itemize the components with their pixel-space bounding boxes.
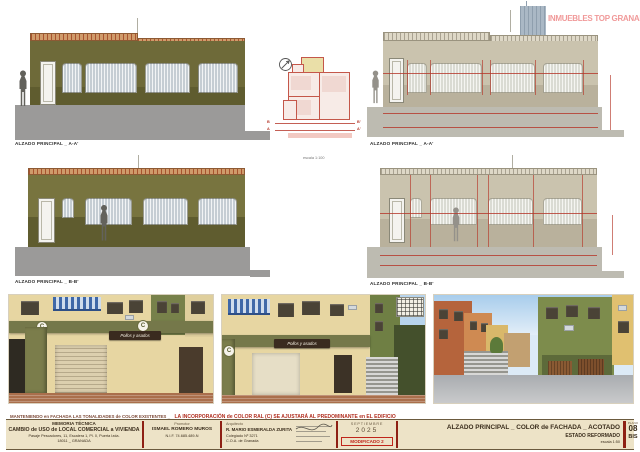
divider [396,421,398,448]
brick-pavement [9,393,214,404]
ground-step [602,130,624,137]
window [198,198,237,225]
brick-pavement [222,395,426,404]
ground-step [602,271,624,278]
window [543,63,583,93]
dimension-line [410,175,411,247]
photo-window [470,321,477,330]
dark-door [179,347,203,393]
party-wall-line [138,155,139,169]
street-stairs [366,357,398,395]
shop-sign: Pollos y asados [109,331,161,340]
plan-highlight-bar [288,133,352,138]
dimension-line [610,75,611,130]
architect-label: Arquitecto [226,422,243,426]
north-compass-icon [278,57,293,72]
photo-window [375,321,383,331]
watermark-text: INMUEBLES TOP GRANADA [548,14,640,23]
brick-cornice [30,33,138,41]
elevation-a-color [15,18,271,143]
person-silhouette [370,70,381,107]
plan-room-stair [301,57,324,73]
dimension-line [533,175,534,247]
photo-window [454,311,463,321]
dimension-line [380,255,597,256]
cornice [383,32,490,41]
photo-window [546,307,558,319]
divider [142,421,144,448]
elevation-a-dimensioned-label: ALZADO PRINCIPAL _ A-A' [370,141,434,146]
photo-window [191,301,205,314]
section-marker: A' [357,127,361,131]
trees [394,325,426,395]
tower-silhouette [520,6,546,38]
drawing-sheet: ALZADO PRINCIPAL _ A-A' INMUEBLES TOP GR… [0,0,640,452]
window [490,63,535,93]
street-pavement [434,375,634,404]
street-photo [433,294,634,404]
divider [220,421,222,448]
section-marker: B' [357,120,361,124]
tower-antenna [526,1,527,6]
elevation-b-color [15,155,271,280]
shop-sign: Pollos y asados [274,339,330,348]
window [62,63,82,93]
dimension-line [380,265,597,266]
blue-awning [228,299,270,315]
window [198,63,238,93]
window [543,198,582,225]
ground-base [367,107,602,137]
sheet-title: ALZADO PRINCIPAL _ COLOR de FACHADA _ AC… [400,424,620,431]
dark-doorway [9,339,25,393]
photo-window [157,301,167,313]
modified-badge: MODIFICADO 2 [341,437,393,446]
window [430,63,482,93]
dimension-line [383,127,598,128]
ground-base [15,105,245,140]
dimension-line [477,175,478,247]
date-year: 2025 [340,427,394,434]
photo-window [129,300,143,313]
project-title: CAMBIO de USO de LOCAL COMERCIAL a VIVIE… [8,427,140,433]
window [143,198,188,225]
dark-door [334,355,352,393]
person-silhouette [17,70,29,110]
party-wall-line [510,10,511,32]
photo-window [302,301,320,315]
window [407,63,427,93]
garage-roller-door [55,345,107,393]
project-city: 18011 _ GRANADA [8,439,140,443]
photo-window [330,304,344,316]
photo-pillar [25,327,47,393]
project-address: Pasaje Pescadores, 11, Escalera 1, Pl. 0… [8,434,140,438]
facade-photo-1: C C Pollos y asados [8,294,214,404]
brick-cornice [28,168,245,175]
promoter-label: Promotor [146,422,218,426]
divider [336,421,338,448]
ground-step [250,270,270,277]
person-silhouette [98,203,110,246]
blue-awning [53,297,101,311]
elevation-b-color-label: ALZADO PRINCIPAL _ B-B' [15,279,79,284]
elevation-b-dimensioned-label: ALZADO PRINCIPAL _ B-B' [370,281,434,286]
section-marker: B [267,120,270,124]
dimension-line [383,113,598,114]
dimension-line [430,175,431,247]
date-month: SEPTIEMBRE [340,422,394,426]
photo-window [375,303,383,313]
entrance-door [38,198,55,243]
color-ref-badge: C [223,345,235,357]
photo-window [566,305,578,317]
promoter-name: ISMAEL ROMERO MUROS [146,427,218,432]
facade-photo-2: C Pollos y asados [221,294,426,404]
dimension-line [407,60,408,95]
dimension-line [490,60,491,95]
tree [490,337,503,353]
window [62,198,74,218]
window [410,198,422,218]
signature-scribble [292,421,334,448]
photo-window [107,302,123,314]
plan-annex [283,100,297,120]
plan-partition [319,72,320,120]
plan-partition [288,96,319,97]
entrance-door [40,61,56,105]
floor-plan-key: B B' A A' escala 1:100 [265,50,365,165]
entrance-door [389,198,405,243]
sheet-scale: escala 1:50 [400,440,620,444]
grille-window [396,297,424,317]
elevation-b-dimensioned [360,155,640,285]
photo-window [588,307,600,319]
sheet-subtitle: ESTADO REFORMADO [400,433,620,439]
section-marker: A [267,127,270,131]
dimension-line [582,175,583,247]
plan-scale-label: escala 1:100 [303,156,325,160]
ac-unit [564,325,574,331]
ac-unit [348,305,357,310]
plan-room [291,76,311,90]
section-line-a [275,130,355,131]
project-label: MEMORIA TÉCNICA [8,421,140,426]
dimension-line [612,215,613,255]
architect-coa: C.O.A. de Granada [226,439,259,443]
promoter-nif: N.I.F. 74.685.489-N [146,434,218,438]
ac-unit [125,315,134,320]
photo-window [171,303,179,313]
party-wall-line [512,155,513,169]
photo-window [618,321,629,333]
plate-suffix: BIS [626,434,640,440]
window [145,63,190,93]
plate-number: 08 [626,424,640,433]
architect-name: R. MARIO ESMERALDA ZURITA [226,427,292,432]
photo-window [439,309,448,319]
dimension-line [488,175,489,247]
photo-window [278,303,294,317]
ground-base [15,247,250,276]
dimension-line [583,60,584,95]
ac-unit [618,305,627,311]
entrance-door [389,58,404,103]
elevation-a-dimensioned: INMUEBLES TOP GRANADA [360,0,640,140]
cornice [380,168,597,175]
section-line-b [275,123,355,124]
window [85,63,137,93]
window [488,198,533,225]
architect-stamp [292,421,334,448]
ground-base [367,247,602,278]
photo-window [21,301,39,315]
dimension-line [535,60,536,95]
elevation-a-color-label: ALZADO PRINCIPAL _ A-A' [15,141,79,146]
photo-window [439,329,448,339]
plan-room [322,76,346,92]
dimension-line [430,60,431,95]
dimension-line [482,60,483,95]
architect-college: Colegiado Nº 3271 [226,434,258,438]
garage-roller-door [252,353,300,395]
